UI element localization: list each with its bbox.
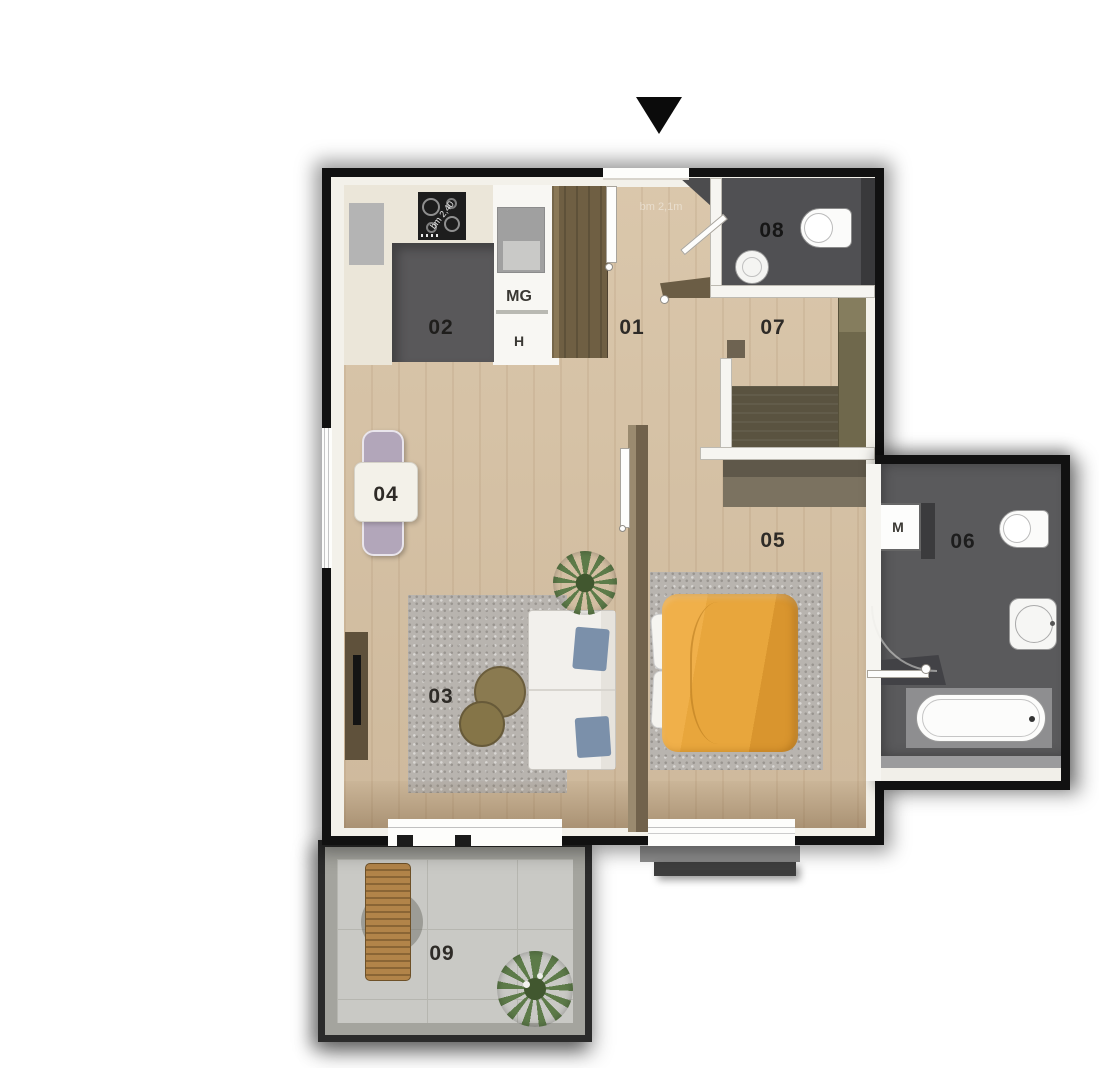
room-label-01: 01: [619, 316, 644, 340]
washing-machine-shadow: [921, 503, 935, 559]
entrance-threshold: [603, 178, 689, 180]
bathtub-faucet: [1029, 716, 1035, 722]
living-plant-icon: [553, 551, 617, 615]
washbasin-icon: [735, 250, 769, 284]
entrance-opening: [603, 168, 689, 178]
room-label-03: 03: [428, 685, 453, 709]
sofa-cushion: [572, 627, 610, 672]
fridge-door: [503, 241, 540, 270]
bathroom-door-leaf: [867, 670, 929, 678]
hall-annotation: bm 2,1m: [640, 201, 683, 213]
bedroom-door-leaf: [620, 448, 630, 528]
cabinet-label-h: H: [514, 333, 524, 349]
room-label-02: 02: [428, 316, 453, 340]
burner: [444, 216, 460, 232]
living-bedroom-wall: [628, 425, 648, 832]
room-label-05: 05: [760, 529, 785, 553]
kitchen-window-shaft: [349, 203, 384, 265]
tv-icon: [353, 655, 361, 725]
wardrobe-shadow-band: [723, 457, 866, 477]
toilet-bowl: [1003, 514, 1031, 543]
basin-bowl: [742, 257, 762, 277]
bathtub-icon: [916, 694, 1046, 742]
bedroom-wardrobe: [723, 457, 866, 507]
room-label-08: 08: [759, 219, 784, 243]
washbasin-icon: [1009, 598, 1057, 650]
cabinet-label-mg: MG: [506, 288, 532, 306]
wardrobe-top-shelf: [839, 292, 866, 332]
wc-west-wall: [710, 178, 722, 288]
dressing-south-wall: [700, 447, 875, 460]
bedroom-window-glazing: [648, 827, 795, 828]
wc-south-wall: [710, 285, 875, 298]
wardrobe-shading: [552, 186, 607, 358]
room-label-06: 06: [950, 530, 975, 554]
bathroom-extension: M 06: [875, 455, 1070, 790]
window-sill-outer: [640, 846, 800, 862]
bathroom-floor-band: [875, 756, 1061, 768]
kitchen-floor: [392, 243, 494, 362]
balcony: 09: [318, 840, 592, 1042]
window-sill-inner: [654, 862, 796, 876]
apartment-main-block: bm 2,40 MG H 02 bm 2,1m 01: [322, 168, 884, 845]
bathtub-inner: [922, 699, 1040, 737]
balcony-door-post: [455, 835, 471, 846]
bed-duvet-icon: [662, 594, 798, 752]
bathroom-door-knob: [921, 664, 931, 674]
entrance-door-leaf: [606, 186, 617, 263]
coffee-table-icon: [459, 701, 505, 747]
cabinet-divider: [496, 310, 548, 314]
toilet-icon: [999, 510, 1049, 548]
bedroom-window-glazing: [648, 833, 795, 834]
plant-flower-dot: [537, 973, 543, 979]
toilet-bowl: [804, 213, 833, 243]
west-window-glazing: [328, 428, 329, 568]
dressing-west-wall: [720, 358, 732, 457]
bedroom-door-knob: [619, 525, 626, 532]
bathroom-south-strip: [875, 768, 1061, 781]
entrance-arrow-icon: [636, 97, 682, 134]
washing-machine-label: M: [892, 519, 904, 535]
duvet-fold: [690, 602, 760, 744]
fridge-icon: [497, 207, 545, 273]
balcony-door-post: [397, 835, 413, 846]
toilet-icon: [800, 208, 852, 248]
room-label-09: 09: [429, 942, 454, 966]
hall-wardrobe: [552, 186, 608, 358]
sofa-icon: [528, 610, 616, 770]
wc-floor-shadow: [861, 178, 875, 286]
entrance-door-knob: [605, 263, 613, 271]
lounger-icon: [365, 863, 411, 981]
dressing-wardrobe-vertical: [838, 292, 866, 450]
room-label-07: 07: [760, 316, 785, 340]
sofa-seam: [529, 689, 615, 691]
basin-bowl: [1015, 605, 1053, 643]
west-window-glazing: [324, 428, 325, 568]
sofa-cushion: [575, 716, 612, 758]
balcony-plant-icon: [497, 951, 573, 1027]
cooktop-icon: bm 2,40: [418, 192, 466, 240]
basin-faucet: [1050, 621, 1055, 626]
balcony-door-glazing: [388, 827, 562, 828]
floor-plan: 09 bm 2,40 MG H 02: [0, 0, 1099, 1068]
dressing-wall-cap: [727, 340, 745, 358]
room-label-04: 04: [373, 483, 398, 507]
plant-flower-dot: [523, 981, 530, 988]
hall-console-knob: [660, 295, 669, 304]
balcony-door-opening: [388, 819, 562, 846]
